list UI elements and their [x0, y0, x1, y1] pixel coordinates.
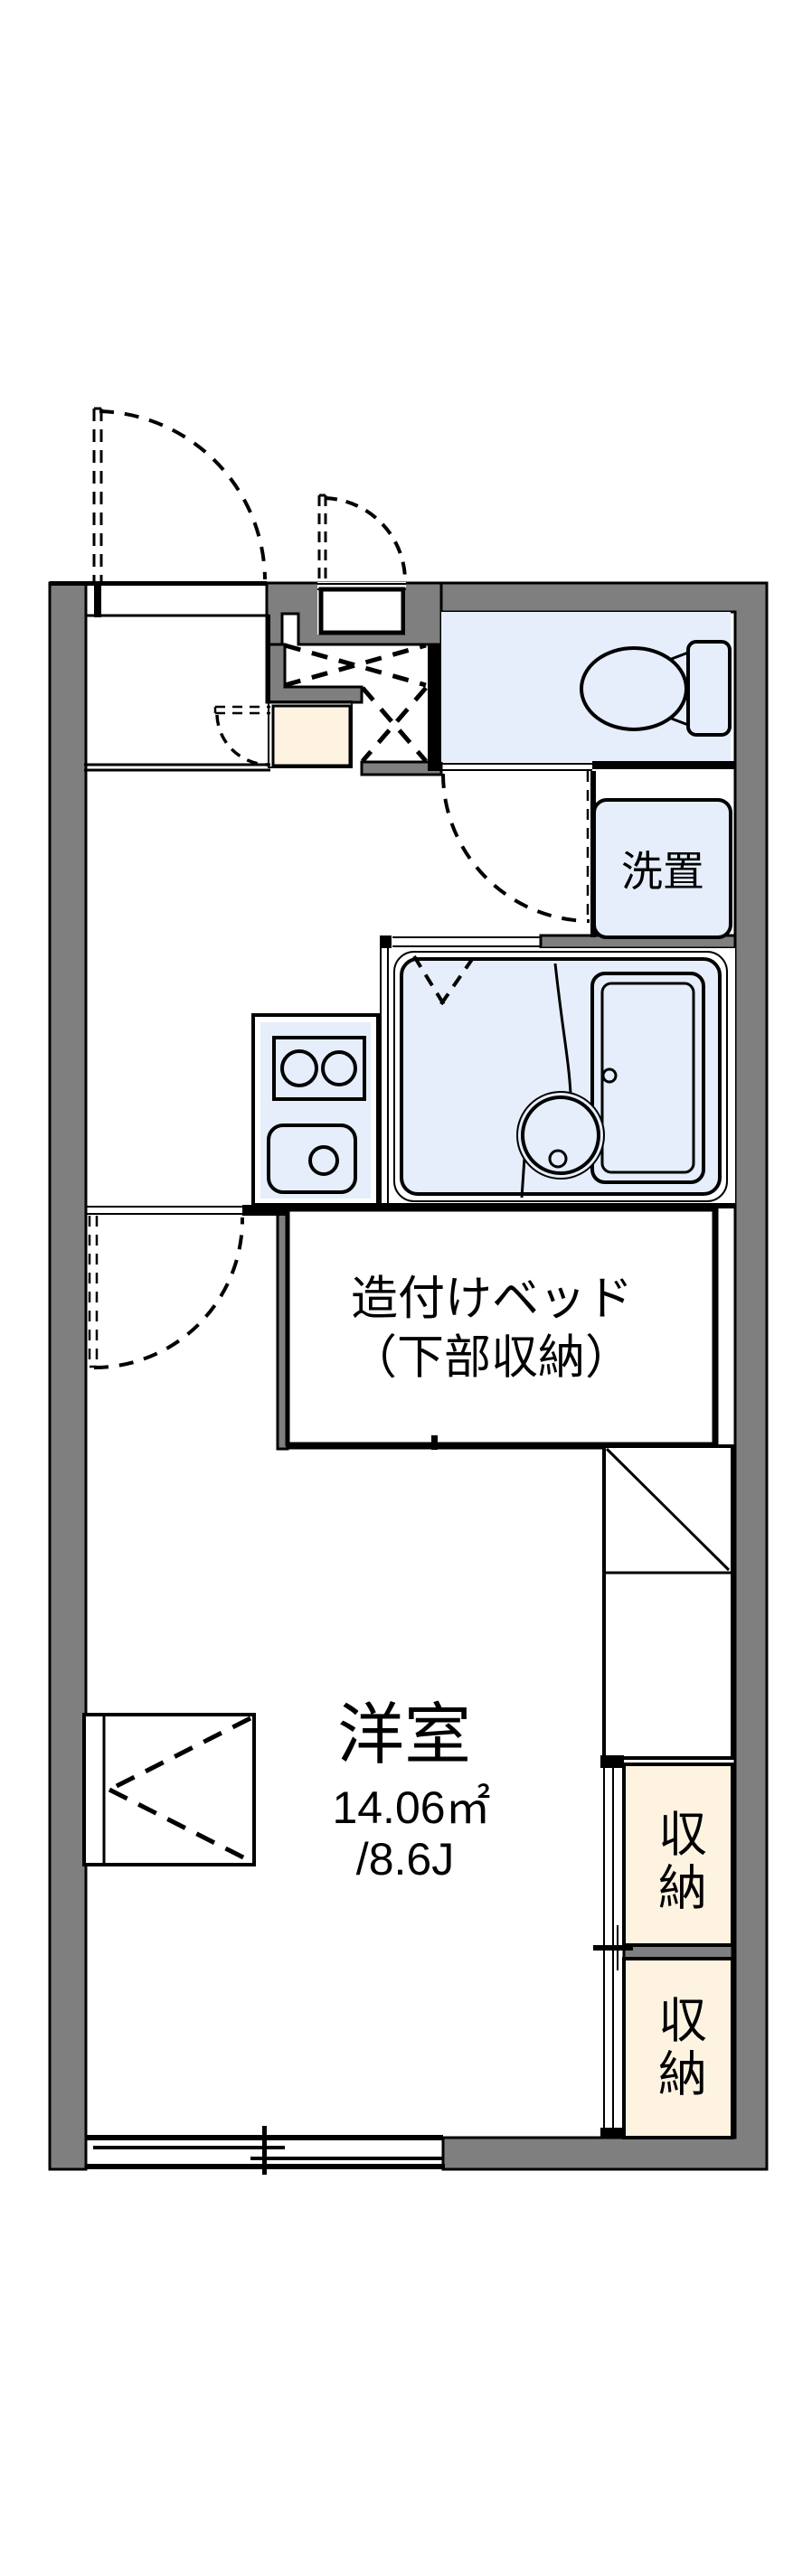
meter-box-door-swing: [319, 495, 405, 581]
storage-bottom-label: 収納: [643, 1995, 714, 2102]
storage-top-label: 収納: [643, 1809, 714, 1916]
main-room-name: 洋室: [337, 1681, 471, 1778]
entry-hall-outline: [84, 615, 270, 770]
entry-inner-door-swing: [215, 707, 270, 765]
toilet-door-threshold: [441, 764, 592, 770]
toilet-bottom-wall: [592, 761, 735, 769]
sliding-window: [86, 2126, 445, 2175]
washer-label: 洗置: [621, 839, 704, 898]
entry-door-swing: [94, 409, 265, 581]
bathroom: [380, 935, 735, 1205]
entry-step: [269, 701, 352, 767]
room-door-swing: [90, 1216, 242, 1368]
toilet: [581, 642, 730, 735]
washbasin: [517, 1092, 604, 1179]
floor-plan-page: 洗置 造付けベッド （下部収納） 洋室 14.06㎡ /8.6J 収納 収納: [0, 0, 812, 2576]
sink: [269, 1125, 355, 1192]
bed-label-line2: （下部収納）: [350, 1320, 632, 1387]
toilet-left-wall: [428, 644, 441, 771]
bay-window-box: [84, 1715, 254, 1865]
toilet-door-swing: [443, 771, 594, 922]
bath-door-threshold: [392, 937, 540, 946]
main-room-area-tatami: /8.6J: [356, 1833, 454, 1885]
bed-label-line1: 造付けベッド: [351, 1261, 633, 1329]
main-room-area-sqm: 14.06㎡: [332, 1772, 490, 1837]
stove: [272, 1036, 366, 1101]
meter-box: [317, 582, 406, 635]
kitchen-counter: [253, 1015, 378, 1205]
